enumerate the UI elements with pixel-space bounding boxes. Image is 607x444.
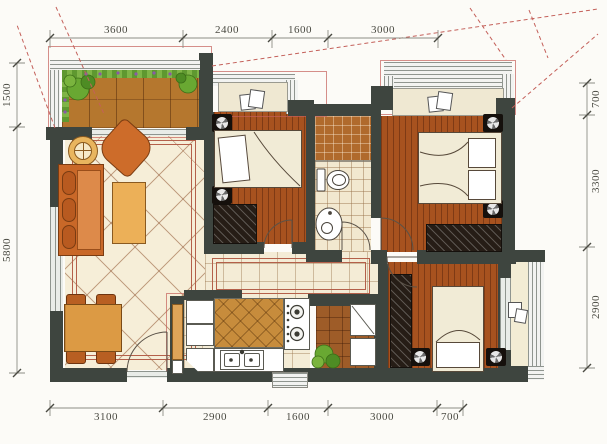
- dim-top-1: 3600: [86, 24, 146, 36]
- dim-bottom-1: 3100: [76, 411, 136, 423]
- sofa-cushion: [62, 225, 76, 249]
- dim-right-3: 2900: [590, 277, 602, 337]
- dim-top-3: 1600: [270, 24, 330, 36]
- wall: [306, 250, 342, 262]
- terrace-rail: [50, 60, 200, 70]
- dim-top-4: 3000: [353, 24, 413, 36]
- wall: [306, 104, 381, 116]
- nightstand-icon: [483, 114, 503, 132]
- dining-chair: [96, 350, 116, 364]
- wall: [50, 311, 63, 382]
- wall: [378, 86, 393, 110]
- book: [514, 308, 528, 324]
- wall: [310, 368, 382, 382]
- kitchen-sink-icon: [220, 350, 264, 370]
- kitchen-sliding-door: [172, 304, 183, 360]
- nightstand-icon: [410, 348, 430, 366]
- terrace-rail: [50, 62, 60, 128]
- round-side-table: [68, 136, 98, 166]
- nightstand-icon: [486, 348, 506, 366]
- pillow: [468, 138, 496, 168]
- wall: [417, 250, 516, 264]
- dim-top-2: 2400: [197, 24, 257, 36]
- hall-border-inner: [216, 262, 366, 290]
- dim-bottom-3: 1600: [268, 411, 328, 423]
- master-wardrobe: [426, 224, 502, 252]
- entry-threshold: [127, 371, 167, 378]
- sink-basin: [224, 353, 240, 367]
- floor-plan-canvas: 3600 2400 1600 3000 3100 2900 1600 3000 …: [0, 0, 607, 444]
- bedroom3-wardrobe: [390, 274, 412, 368]
- dining-chair: [66, 350, 86, 364]
- coffee-table: [112, 182, 146, 244]
- pillow: [436, 342, 480, 368]
- dim-bottom-5: 700: [420, 411, 480, 423]
- kitchen-cabinet: [186, 324, 214, 346]
- window-books-icon: [240, 90, 268, 114]
- rear-balcony-rail: [528, 366, 544, 380]
- dim-bottom-2: 2900: [185, 411, 245, 423]
- wall: [502, 98, 515, 252]
- sofa-cushion: [62, 171, 76, 195]
- dim-right-1: 700: [590, 69, 602, 129]
- wall: [306, 112, 315, 262]
- sofa-cushion: [62, 198, 76, 222]
- appliance-icon: [350, 338, 376, 366]
- sink-basin: [244, 353, 260, 367]
- pillow: [218, 135, 251, 184]
- nightstand-icon: [212, 186, 232, 204]
- window-books-icon: [508, 300, 532, 326]
- stove-icon: [284, 298, 310, 350]
- bathroom-floor: [315, 160, 371, 252]
- wall: [292, 242, 310, 254]
- wall: [500, 366, 528, 382]
- book: [248, 89, 265, 109]
- wall: [371, 250, 387, 264]
- kitchen-counter: [214, 298, 284, 348]
- entry-steps: [272, 372, 308, 388]
- kitchen-door-pocket: [172, 360, 183, 374]
- sofa-seat: [77, 170, 101, 250]
- pillow: [468, 170, 496, 200]
- window-books-icon: [428, 92, 456, 116]
- round-table-top: [74, 142, 92, 160]
- dim-right-2: 3300: [590, 151, 602, 211]
- dim-bottom-4: 3000: [352, 411, 412, 423]
- dim-left-1: 1500: [1, 65, 13, 125]
- dim-left-2: 5800: [1, 220, 13, 280]
- shower-floor: [315, 116, 371, 162]
- wall: [511, 250, 545, 262]
- master-bay-window: [384, 62, 512, 88]
- bedroom2-wardrobe: [213, 204, 257, 244]
- washer-icon: [350, 304, 376, 336]
- book: [436, 91, 453, 111]
- kitchen-cabinet: [186, 300, 214, 324]
- dining-table: [64, 304, 122, 352]
- sofa: [58, 164, 104, 256]
- wall: [186, 127, 213, 140]
